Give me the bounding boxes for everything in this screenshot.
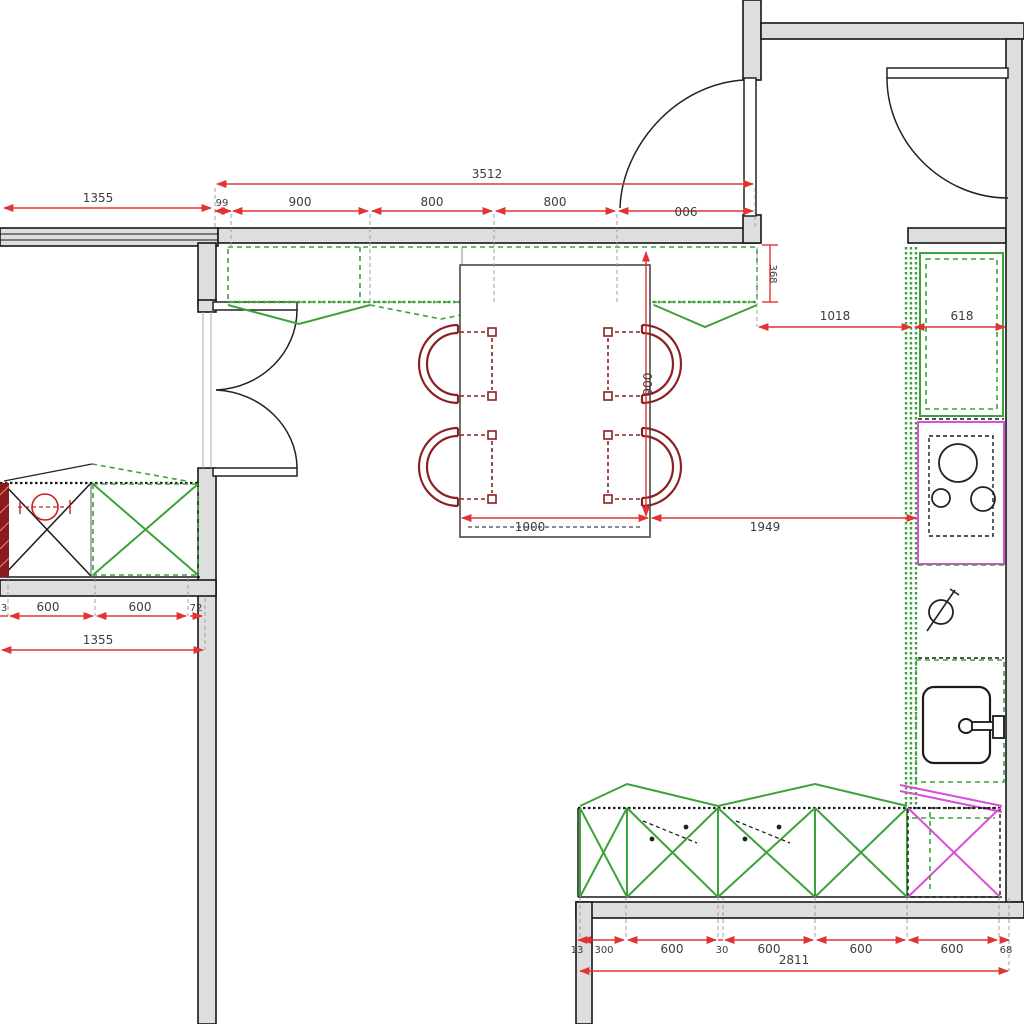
tall-cabinet [920, 253, 1003, 416]
dim-offset: 618 [951, 309, 974, 323]
dim-clearance: 1949 [750, 520, 781, 534]
dim-left-seg: 72 [190, 603, 203, 614]
window [0, 228, 218, 246]
dim-window-overall: 1355 [83, 191, 114, 205]
kitchen-sink [916, 660, 1004, 782]
dim-bottom-seg: 300 [594, 945, 613, 956]
dim-top-seg: 900 [675, 204, 698, 218]
dim-top-seg: 800 [544, 195, 567, 209]
dim-table-width: 1000 [515, 520, 546, 534]
upper-partition-wall [743, 0, 761, 80]
right-appliance-column [900, 247, 1004, 812]
dim-table-depth: 900 [641, 373, 655, 396]
bottom-wall [576, 902, 1024, 918]
cooktop [918, 422, 1004, 564]
left-counter [0, 464, 200, 577]
dishwasher-bay [908, 808, 1000, 897]
dim-bottom-seg: 30 [716, 945, 729, 956]
dim-bottom-seg: 600 [661, 942, 684, 956]
dim-bottom-seg: 600 [850, 942, 873, 956]
dim-bottom-seg: 13 [571, 945, 584, 956]
dim-wall-gap: 368 [767, 264, 778, 283]
kitchen-top-wall [218, 228, 760, 243]
left-wall-lower [198, 468, 216, 1024]
left-cabinet-2 [93, 484, 198, 575]
dim-bottom-seg: 68 [1000, 945, 1013, 956]
counter-peak [4, 464, 92, 481]
dim-top-seg: 900 [289, 195, 312, 209]
bottom-wall-return [576, 902, 592, 1024]
dim-offset: 1018 [820, 309, 851, 323]
lower-left-wall [0, 580, 216, 596]
upper-right-top-wall [761, 23, 1024, 39]
left-cabinet-1 [3, 483, 91, 576]
upper-partition-wall-foot [743, 215, 761, 243]
dim-bottom-seg: 600 [941, 942, 964, 956]
right-top-wall [908, 228, 1006, 243]
bottom-cabinet-run [578, 784, 1002, 897]
dim-top-seg: 800 [421, 195, 444, 209]
dim-left-seg: 600 [37, 600, 60, 614]
left-wall-upper [198, 243, 216, 305]
right-wall [1006, 39, 1022, 902]
sink-symbol [18, 494, 72, 520]
cad-drawing-canvas[interactable]: 1355 3512 99 900 800 800 900 368 1018 61… [0, 0, 1024, 1024]
valve-symbol [918, 565, 1004, 631]
kitchen-entry-door [620, 78, 756, 216]
red-hatch-strip [0, 483, 9, 577]
wall-cabinet-peaks [580, 784, 907, 806]
dim-bottom-overall: 2811 [779, 953, 810, 967]
dim-top-seg: 99 [216, 198, 229, 209]
dim-bottom-seg: 600 [758, 942, 781, 956]
double-door [213, 302, 297, 476]
door-swing-marks [643, 821, 790, 843]
dim-left-seg: 3 [1, 603, 7, 614]
dim-left-overall: 1355 [83, 633, 114, 647]
dim-left-seg: 600 [129, 600, 152, 614]
floor-plan-svg: 1355 3512 99 900 800 800 900 368 1018 61… [0, 0, 1024, 1024]
upper-right-door [887, 68, 1008, 198]
base-cabinets-green [580, 808, 907, 897]
dim-top-overall: 3512 [472, 167, 503, 181]
